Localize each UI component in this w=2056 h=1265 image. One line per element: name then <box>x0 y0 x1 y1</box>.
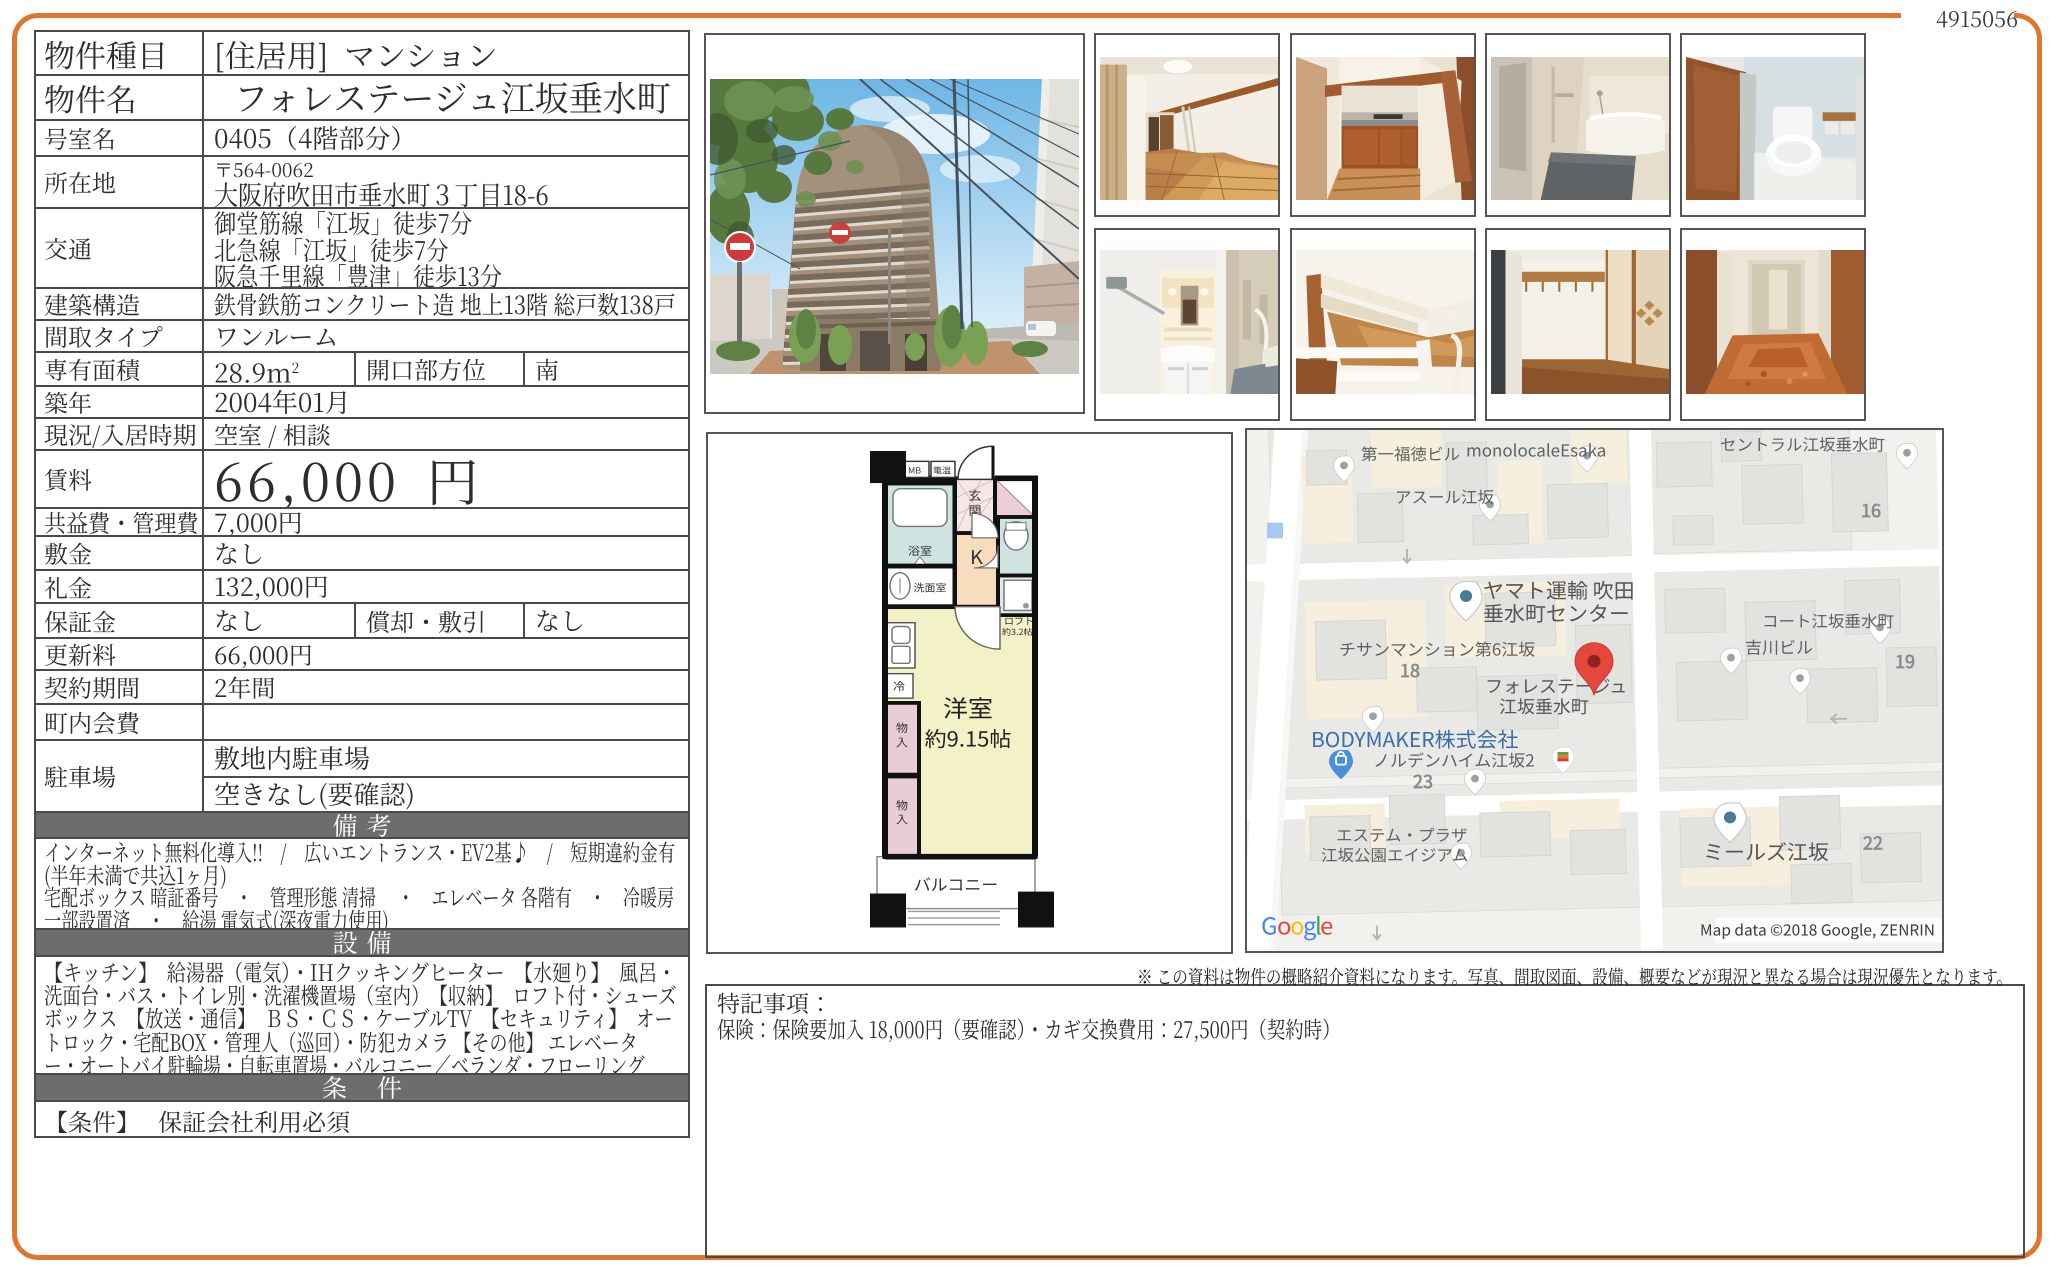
svg-text:電温: 電温 <box>933 464 951 477</box>
svg-text:18: 18 <box>1400 657 1420 683</box>
svg-text:MB: MB <box>908 464 921 477</box>
svg-text:ノルデンハイム江坂2: ノルデンハイム江坂2 <box>1373 748 1535 772</box>
svg-text:monolocaleEsaka: monolocaleEsaka <box>1466 438 1606 462</box>
svg-text:江坂垂水町: 江坂垂水町 <box>1499 693 1589 719</box>
svg-text:垂水町センター: 垂水町センター <box>1483 598 1630 628</box>
svg-text:バルコニー: バルコニー <box>914 872 999 895</box>
svg-text:G: G <box>1261 908 1278 942</box>
svg-text:23: 23 <box>1413 768 1433 794</box>
svg-text:e: e <box>1320 908 1333 942</box>
svg-text:ミールズ江坂: ミールズ江坂 <box>1703 836 1829 866</box>
svg-text:Map data ©2018 Google, ZENRIN: Map data ©2018 Google, ZENRIN <box>1700 919 1935 941</box>
svg-text:K: K <box>970 542 983 570</box>
svg-text:19: 19 <box>1895 648 1915 674</box>
svg-text:22: 22 <box>1863 830 1883 856</box>
svg-text:16: 16 <box>1861 497 1881 523</box>
svg-text:セントラル江坂垂水町: セントラル江坂垂水町 <box>1720 432 1885 456</box>
svg-text:コート江坂垂水町: コート江坂垂水町 <box>1762 608 1894 632</box>
svg-text:冷: 冷 <box>893 678 905 694</box>
svg-text:洗面室: 洗面室 <box>914 581 947 596</box>
svg-text:約9.15帖: 約9.15帖 <box>925 723 1012 753</box>
svg-text:約3.2帖: 約3.2帖 <box>1002 625 1033 638</box>
svg-text:江坂公園エイジアム: 江坂公園エイジアム <box>1321 842 1468 866</box>
svg-text:吉川ビル: 吉川ビル <box>1745 635 1813 659</box>
svg-text:第一福徳ビル: 第一福徳ビル <box>1361 441 1460 465</box>
svg-text:チサンマンション第6江坂: チサンマンション第6江坂 <box>1339 637 1536 661</box>
svg-text:入: 入 <box>896 734 908 750</box>
svg-text:洋室: 洋室 <box>943 690 993 724</box>
svg-text:入: 入 <box>896 811 908 827</box>
svg-text:アスール江坂: アスール江坂 <box>1395 484 1494 508</box>
